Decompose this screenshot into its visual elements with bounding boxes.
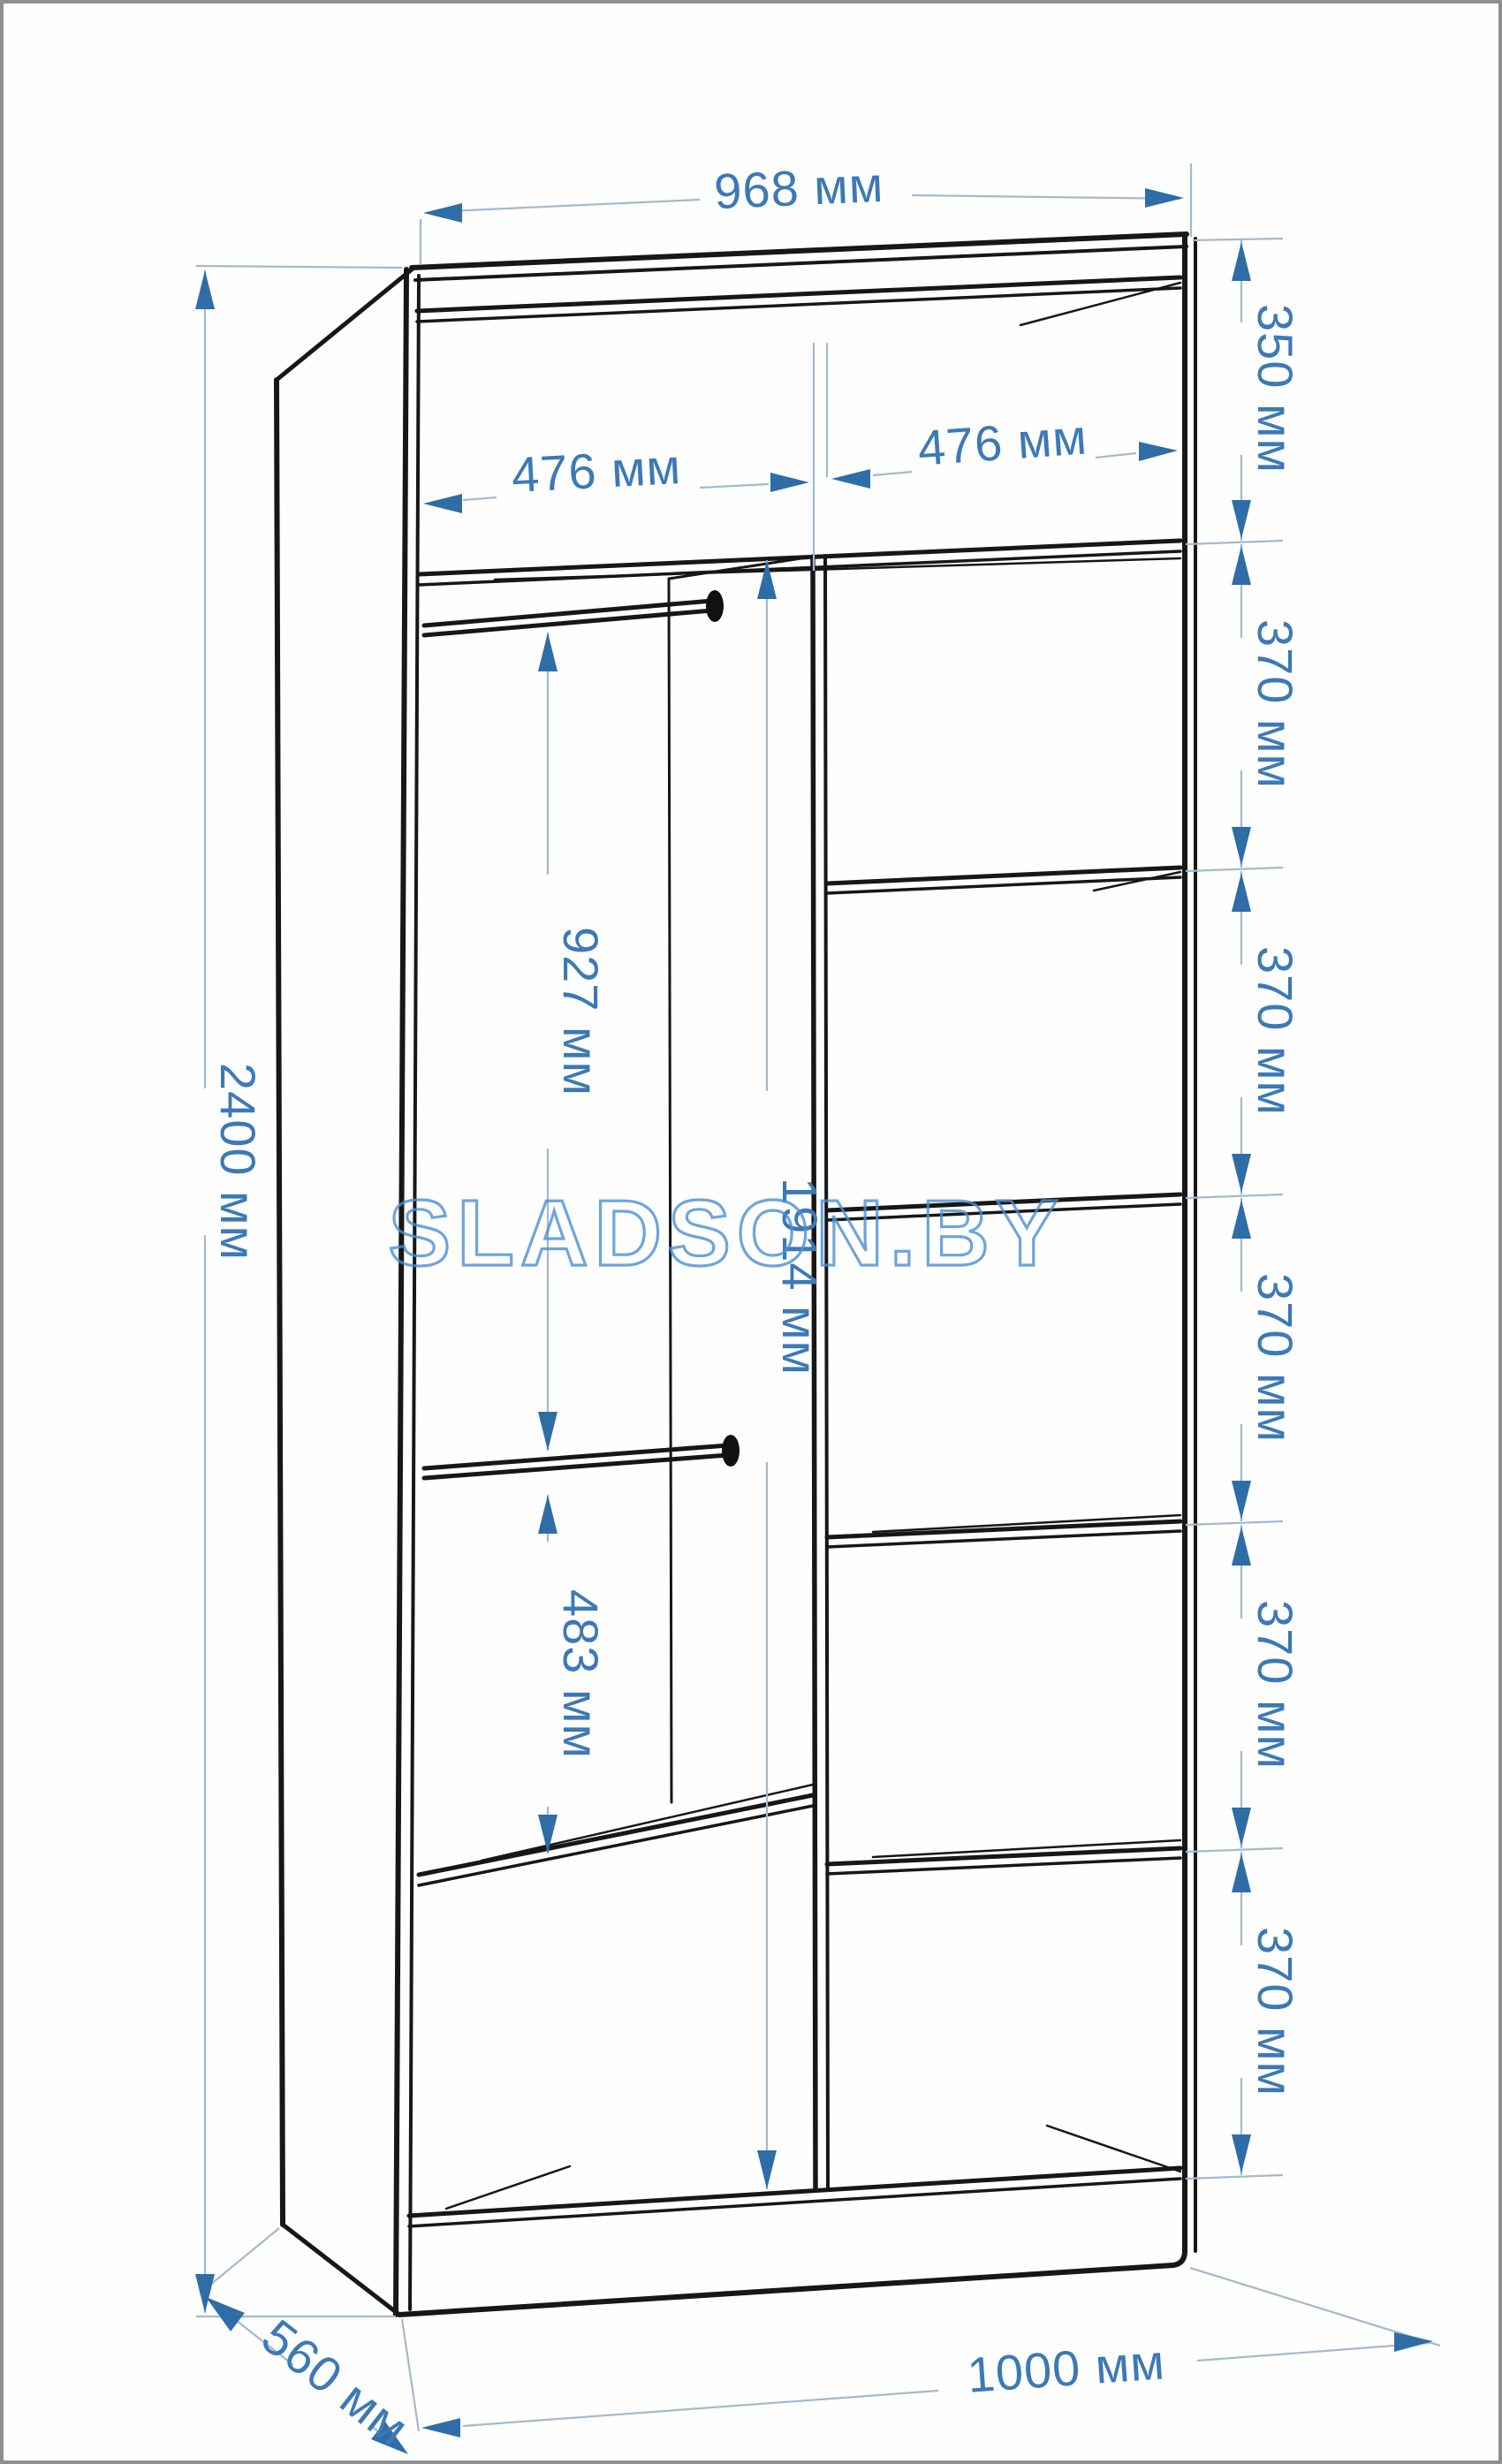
dim-top-section-height-label: 350 мм (1248, 304, 1303, 474)
dim-depth-label: 560 мм (252, 2309, 420, 2457)
dim-shelf-spacing-4-label: 370 мм (1248, 1600, 1303, 1770)
dim-total-height-label: 2400 мм (210, 1063, 266, 1261)
dim-shelf-spacing-5-label: 370 мм (1248, 1927, 1303, 2096)
dim-lower-section-height-label: 483 мм (553, 1589, 609, 1759)
wardrobe-dimension-diagram: 968 мм 350 мм 370 мм 370 мм 370 мм 370 м… (0, 0, 1502, 2464)
watermark: SLADSON.BY (389, 1181, 1065, 1285)
rod-end-cap-middle (722, 1435, 740, 1467)
dim-shelf-spacing-1-label: 370 мм (1248, 619, 1303, 789)
dim-shelf-spacing-3-label: 370 мм (1248, 1273, 1303, 1443)
dim-bottom-width-label: 1000 мм (966, 2333, 1167, 2402)
dim-shelf-spacing-2-label: 370 мм (1248, 946, 1303, 1116)
dim-rod-drop-height-label: 927 мм (553, 927, 609, 1096)
dim-left-compartment-width-label: 476 мм (510, 438, 682, 503)
dim-top-width-label: 968 мм (713, 156, 885, 219)
rod-end-cap-top (706, 590, 724, 622)
technical-drawing-page: 968 мм 350 мм 370 мм 370 мм 370 мм 370 м… (0, 0, 1502, 2464)
dim-right-compartment-width-label: 476 мм (916, 408, 1089, 475)
